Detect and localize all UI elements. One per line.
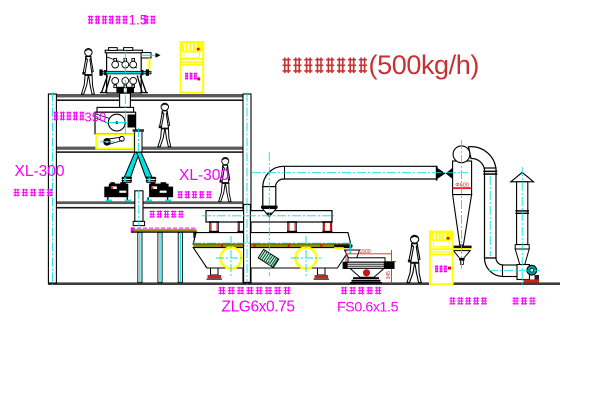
svg-text:XL-300: XL-300 xyxy=(179,167,229,184)
svg-text:1500: 1500 xyxy=(360,249,371,255)
svg-text:XL-300: XL-300 xyxy=(15,163,65,180)
svg-text:345: 345 xyxy=(386,271,392,280)
svg-text:350: 350 xyxy=(85,110,107,125)
svg-text:FS0.6x1.5: FS0.6x1.5 xyxy=(337,300,399,316)
svg-text:ZLG6x0.75: ZLG6x0.75 xyxy=(222,299,295,316)
svg-text:Φ600: Φ600 xyxy=(455,182,468,188)
svg-text:(500kg/h): (500kg/h) xyxy=(369,50,479,80)
